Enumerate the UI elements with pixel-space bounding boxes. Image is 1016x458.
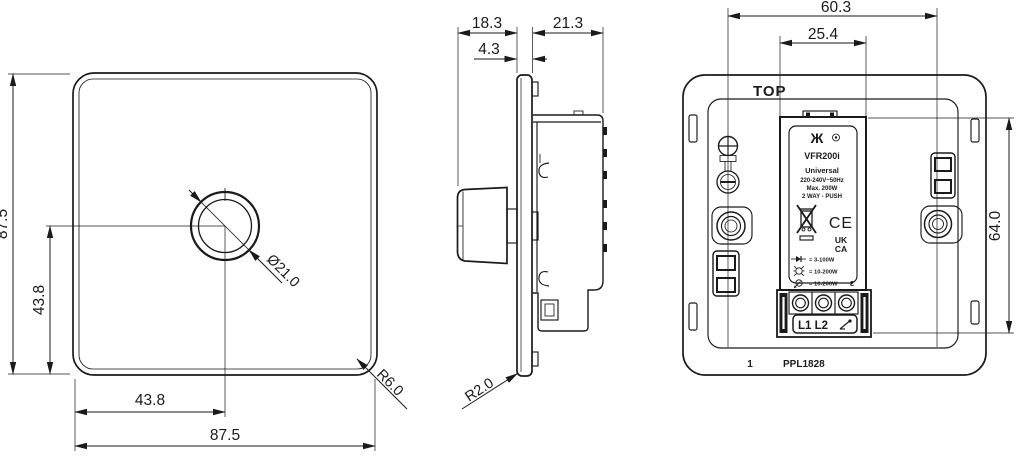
dim-plate-edge-radius: R2.0 xyxy=(462,374,518,410)
module-wiring: 2 WAY - PUSH xyxy=(802,194,842,200)
slot-left-bottom xyxy=(689,303,697,330)
dim-plate-thickness: 4.3 xyxy=(474,41,547,59)
halogen-lamp-icon xyxy=(794,280,802,288)
slot-right-top xyxy=(971,119,979,142)
module-max-load: Max. 200W xyxy=(807,186,838,192)
fixing-boss-right xyxy=(921,206,962,243)
back-box-side xyxy=(533,111,607,331)
dim-module-height: 64.0 xyxy=(868,118,1014,333)
fixing-claw-upper xyxy=(539,163,549,177)
technical-drawing-sheet: 87.5 43.8 43.8 87.5 Ø21.0 R6.0 xyxy=(0,0,1016,458)
dim-label-knob-depth: 18.3 xyxy=(472,15,502,32)
dim-label-module-width: 25.4 xyxy=(808,26,839,43)
mounting-clip-right xyxy=(931,153,955,198)
terminal-screw-l2 xyxy=(816,295,832,311)
side-view: 18.3 21.3 4.3 R2.0 xyxy=(458,15,608,409)
dim-label-module-height: 64.0 xyxy=(987,211,1004,242)
module-voltage: 220-240V~50Hz xyxy=(800,178,844,184)
part-number: PPL1828 xyxy=(783,359,825,370)
knob-side-profile xyxy=(458,188,508,264)
weee-bin-icon xyxy=(797,205,816,240)
module-model: VFR200i xyxy=(804,151,840,161)
slot-right-bottom xyxy=(971,301,979,324)
top-orientation-label: TOP xyxy=(753,83,787,100)
dim-module-width: 25.4 xyxy=(780,26,866,116)
slot-left-top xyxy=(689,115,697,142)
terminal-block: L1 L2 xyxy=(777,290,871,337)
incandescent-lamp-icon xyxy=(794,266,805,276)
rear-view: TOP xyxy=(683,0,1014,375)
dim-box-depth: 21.3 xyxy=(533,15,604,113)
side-plate-outline xyxy=(517,75,532,376)
dim-label-knob-dia: Ø21.0 xyxy=(263,252,302,291)
side-bottom-lug xyxy=(532,352,538,366)
mounting-clip-left xyxy=(713,251,739,296)
rating-led: = 3-100W xyxy=(809,258,835,264)
dim-label-box-depth: 21.3 xyxy=(553,15,583,32)
led-lamp-icon xyxy=(791,256,806,262)
terminal-labels: L1 L2 xyxy=(798,320,828,332)
cert-mark: ε xyxy=(850,278,855,288)
dim-front-center-y: 43.8 xyxy=(31,226,50,374)
rating-incandescent: = 10-200W xyxy=(809,270,838,276)
dim-label-front-center-x: 43.8 xyxy=(135,392,165,409)
dim-front-corner-radius: R6.0 xyxy=(357,359,407,409)
dim-front-height: 87.5 xyxy=(0,74,70,374)
dimmer-module: Ж VFR200i Universal 220-240V~50Hz Max. 2… xyxy=(777,111,871,337)
front-view: 87.5 43.8 43.8 87.5 Ø21.0 R6.0 xyxy=(0,73,407,451)
dim-label-plate-thick: 4.3 xyxy=(478,41,500,58)
terminal-screw-loop xyxy=(839,295,855,311)
fixing-claw-lower xyxy=(539,272,549,286)
fixing-boss-left xyxy=(712,207,752,244)
dim-label-front-width: 87.5 xyxy=(210,427,240,444)
knob-shaft xyxy=(507,209,517,243)
dim-label-corner-r: R6.0 xyxy=(373,367,406,400)
rating-halogen: = 10-200W xyxy=(809,282,838,288)
dim-label-front-height: 87.5 xyxy=(0,209,11,239)
ce-mark-icon: CE xyxy=(829,215,853,232)
loop-terminal-icon xyxy=(840,319,852,329)
dim-label-edge-r: R2.0 xyxy=(462,375,496,405)
brand-logo-icon: Ж xyxy=(810,130,824,146)
dim-knob-diameter: Ø21.0 xyxy=(189,190,302,291)
dim-label-fixing-span: 60.3 xyxy=(821,0,851,16)
terminal-recess-side xyxy=(541,300,558,320)
sheet-number: 1 xyxy=(747,359,753,370)
dimmer-switch-drawing: 87.5 43.8 43.8 87.5 Ø21.0 R6.0 xyxy=(0,0,1016,458)
dim-front-center-x: 43.8 xyxy=(75,379,225,451)
terminal-screw-l1 xyxy=(793,295,809,311)
ukca-mark-ca: CA xyxy=(835,244,847,254)
side-top-lug xyxy=(532,82,538,96)
module-range: Universal xyxy=(805,166,839,175)
dim-label-front-center-y: 43.8 xyxy=(31,285,48,315)
